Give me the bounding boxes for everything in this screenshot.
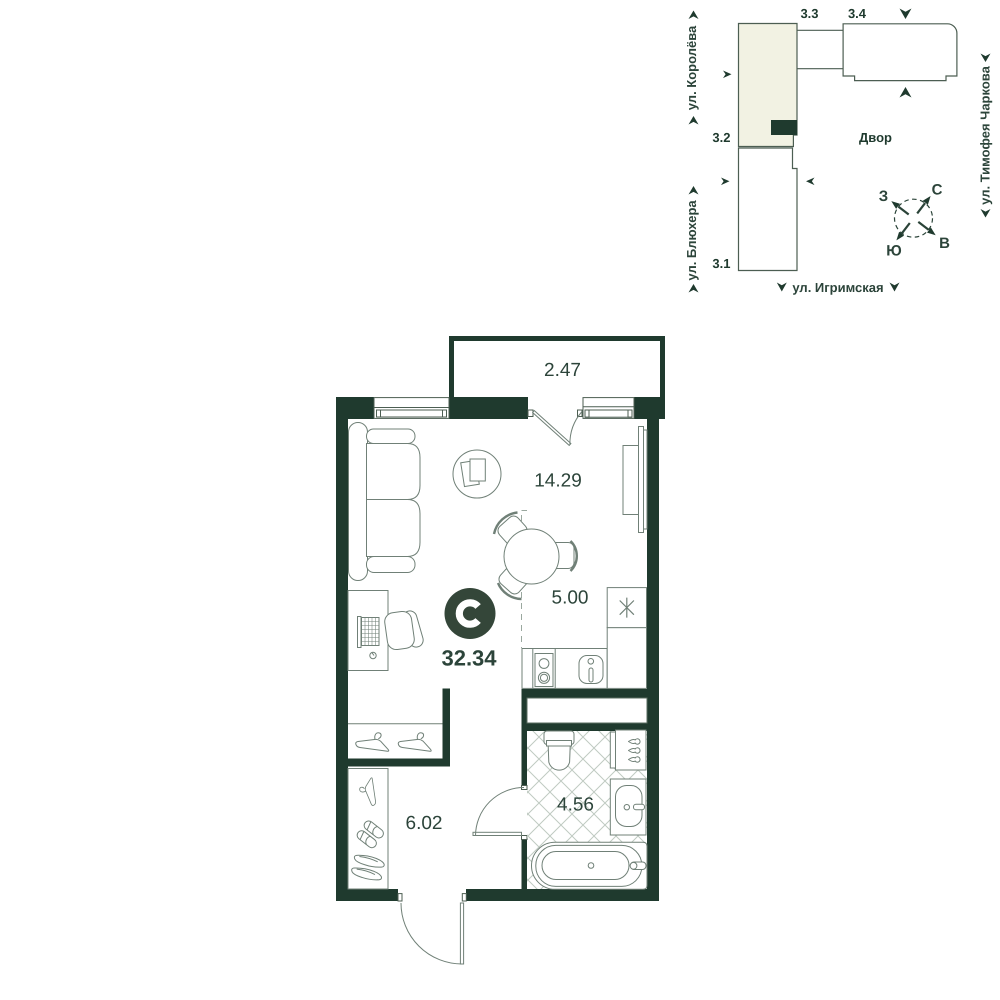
svg-text:Ю: Ю [886,243,901,260]
svg-text:2.47: 2.47 [544,360,581,381]
svg-text:Двор: Двор [859,130,892,145]
svg-text:ул. Блюхера: ул. Блюхера [684,200,699,281]
svg-text:3.4: 3.4 [848,6,867,21]
svg-text:3.1: 3.1 [712,256,730,271]
svg-text:3.2: 3.2 [712,130,730,145]
svg-text:5.00: 5.00 [552,588,589,609]
svg-text:4.56: 4.56 [557,795,594,816]
svg-text:С: С [932,182,943,199]
svg-text:З: З [879,188,888,205]
svg-text:14.29: 14.29 [534,471,582,492]
svg-text:В: В [939,235,950,252]
svg-text:6.02: 6.02 [406,813,443,834]
svg-text:3.3: 3.3 [800,6,818,21]
svg-text:ул. Королёва: ул. Королёва [684,25,699,110]
svg-text:32.34: 32.34 [441,646,497,671]
svg-text:ул. Игримская: ул. Игримская [792,280,883,295]
svg-text:ул. Тимофея Чаркова: ул. Тимофея Чаркова [978,65,993,204]
